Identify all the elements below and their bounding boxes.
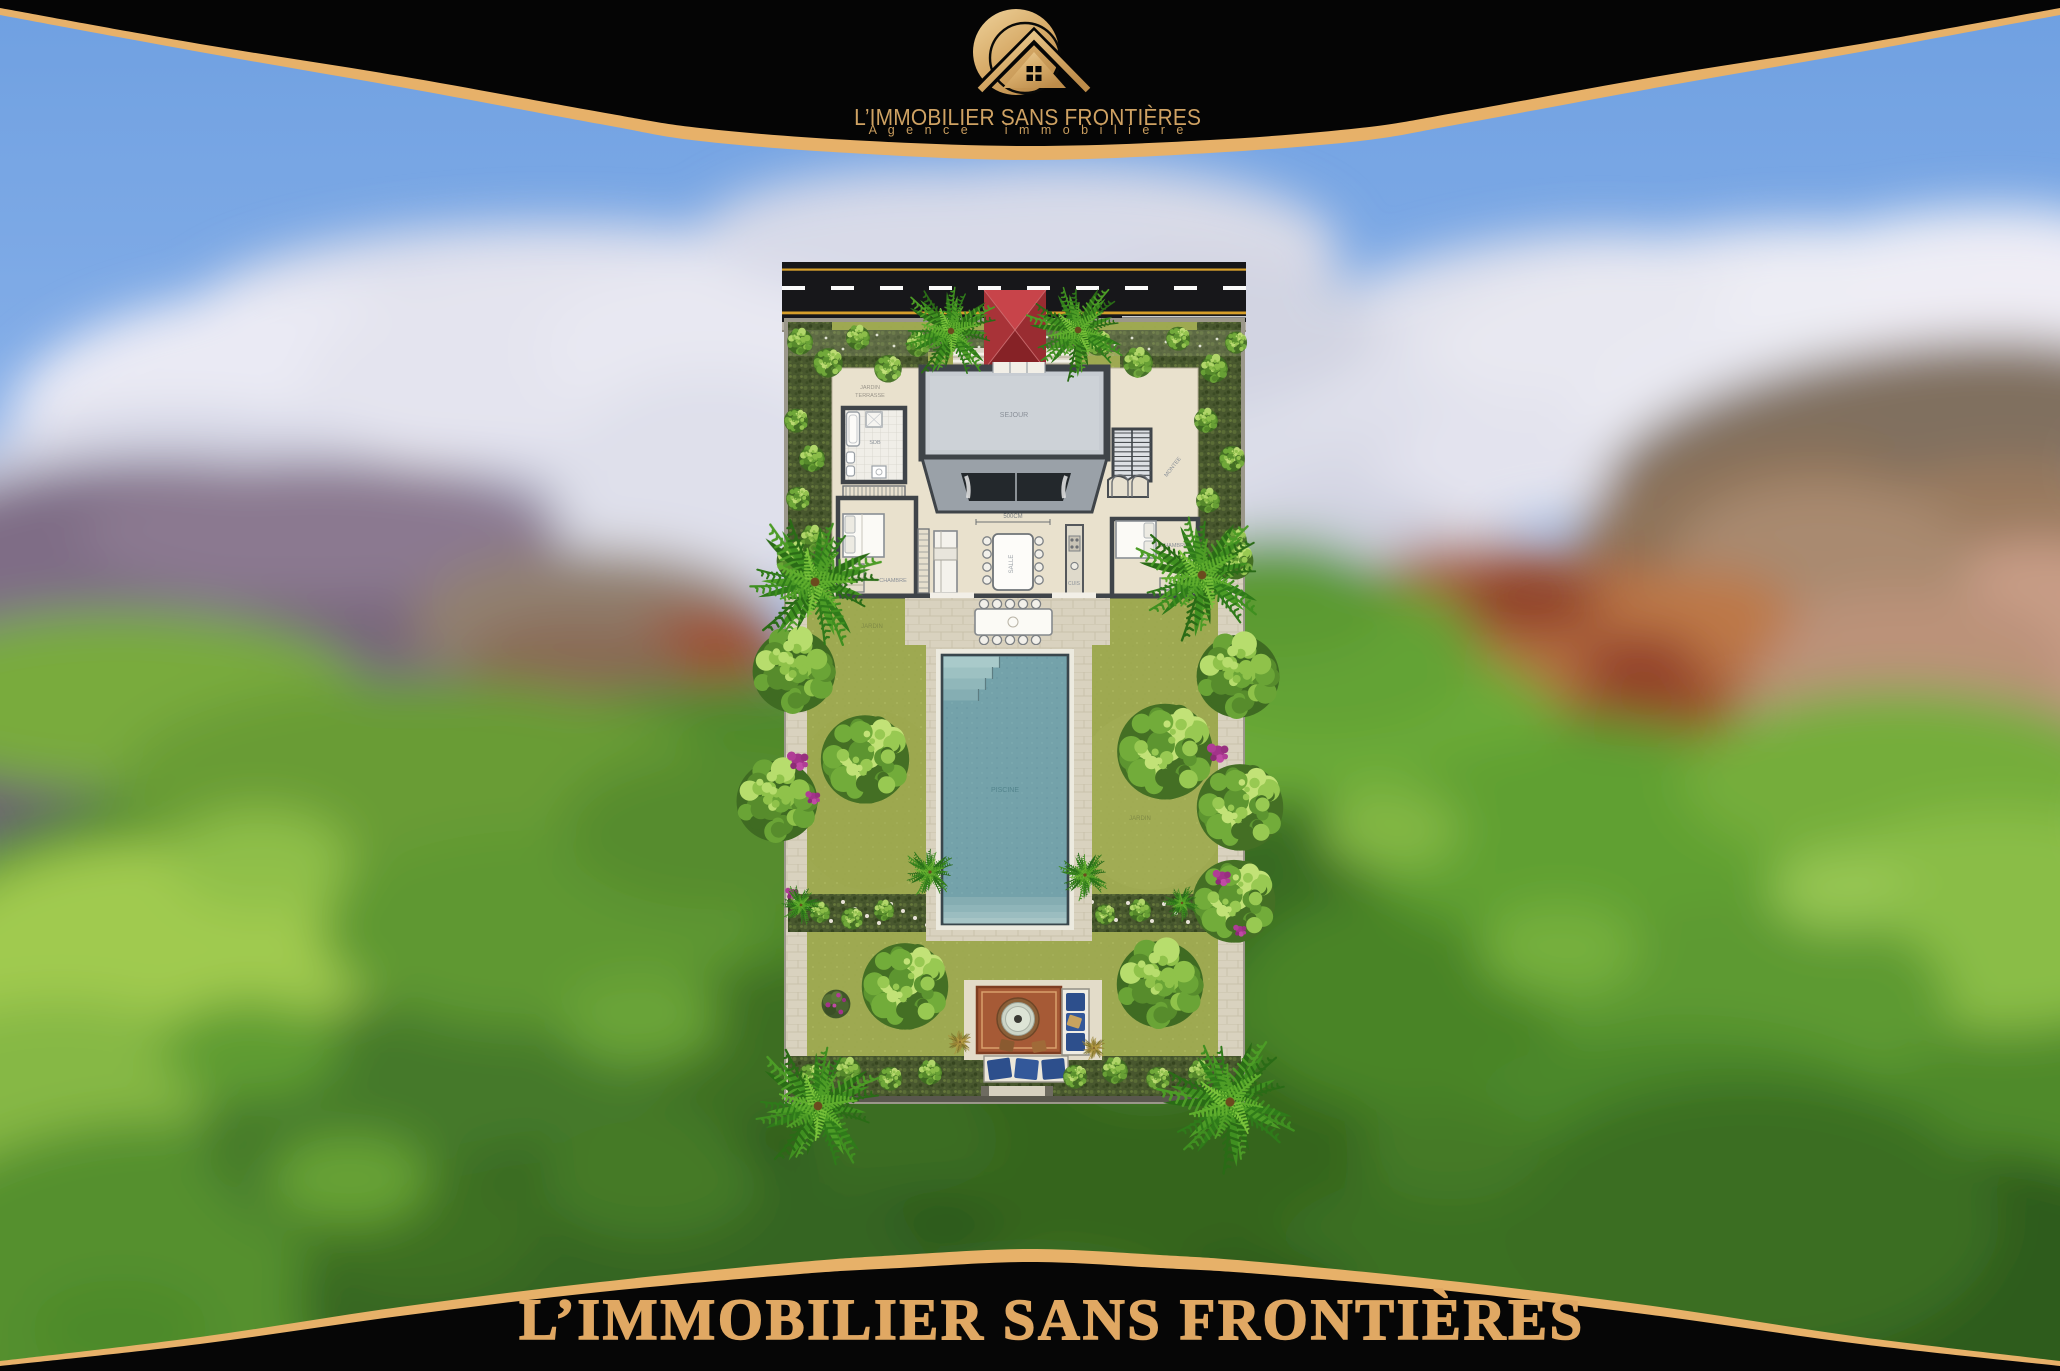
svg-text:SEJOUR: SEJOUR [1000, 412, 1028, 419]
svg-text:SDB: SDB [869, 440, 881, 446]
svg-text:JARDIN: JARDIN [1129, 816, 1151, 822]
svg-text:500CM: 500CM [1003, 514, 1022, 520]
svg-text:JARDIN: JARDIN [860, 385, 880, 391]
svg-text:CUIS: CUIS [1068, 581, 1081, 587]
svg-text:SALLE: SALLE [1009, 555, 1015, 574]
svg-text:PISCINE: PISCINE [991, 787, 1019, 794]
svg-text:TERRASSE: TERRASSE [855, 393, 885, 399]
svg-text:CHAMBRE: CHAMBRE [879, 578, 907, 584]
svg-text:JARDIN: JARDIN [861, 624, 883, 630]
